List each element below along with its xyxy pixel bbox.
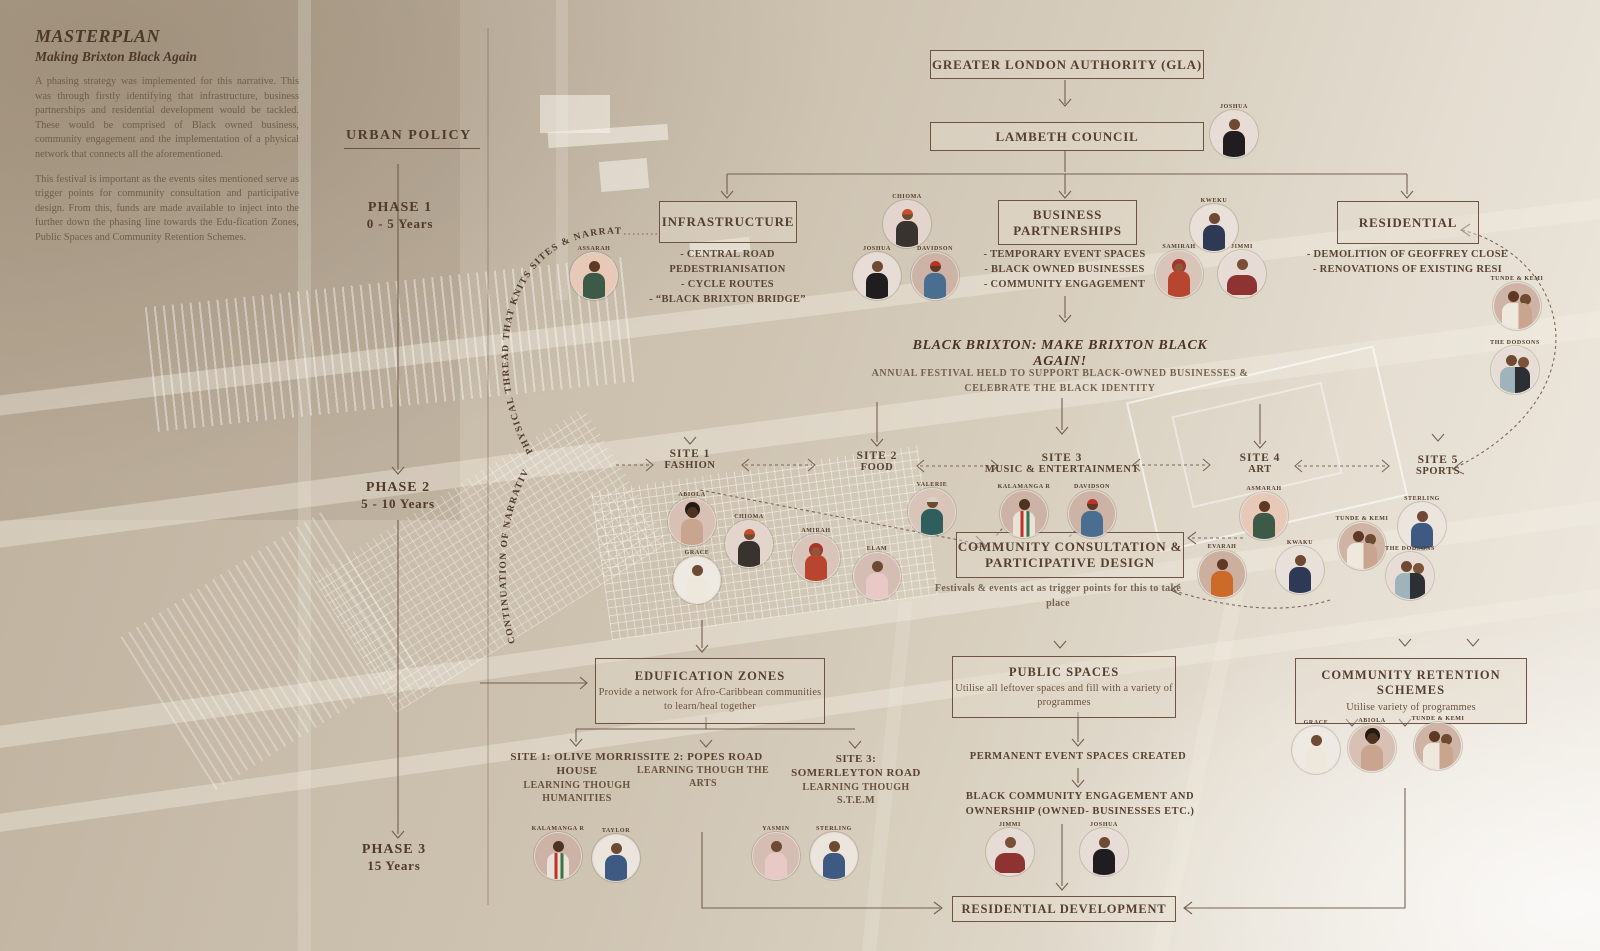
avatar-jimmi: JIMMI: [982, 822, 1038, 875]
learning-site-2-method: LEARNING THOUGH THE ARTS: [632, 764, 774, 790]
person-icon: [1387, 553, 1433, 599]
avatar-tunde-kemi: TUNDE & KEMI: [1410, 716, 1466, 769]
avatar-name: JOSHUA: [849, 246, 905, 252]
avatar-joshua: JOSHUA: [1206, 104, 1262, 157]
avatar-valerie: VALERIE: [904, 482, 960, 535]
avatar-yasmin: YASMIN: [748, 826, 804, 879]
intro-paragraph-2: This festival is important as the events…: [35, 173, 299, 246]
site-5-id: SITE 5: [1343, 454, 1533, 466]
avatar-grace: GRACE: [669, 550, 725, 603]
avatar-circle: [1156, 251, 1202, 297]
avatar-name: KALAMANGA R: [996, 484, 1052, 490]
avatar-circle: [1492, 347, 1538, 393]
site-4-name: ART: [1165, 464, 1355, 475]
person-icon: [987, 829, 1033, 875]
person-icon: [535, 833, 581, 879]
avatar-kalamanga: KALAMANGA R: [996, 484, 1052, 537]
lambeth-council-box: LAMBETH COUNCIL: [930, 122, 1204, 151]
avatar-name: JIMMI: [1214, 244, 1270, 250]
lambeth-council-label: LAMBETH COUNCIL: [995, 129, 1138, 145]
avatar-circle: [1081, 829, 1127, 875]
avatar-name: ASMARAH: [1236, 486, 1292, 492]
infrastructure-items: - CENTRAL ROAD PEDESTRIANISATION - CYCLE…: [640, 248, 815, 308]
avatar-circle: [854, 253, 900, 299]
person-icon: [1241, 493, 1287, 539]
site-5-name: SPORTS: [1343, 466, 1533, 477]
avatar-circle: [912, 253, 958, 299]
person-icon: [1001, 491, 1047, 537]
avatar-name: ABIOLA: [1344, 718, 1400, 724]
person-icon: [909, 489, 955, 535]
person-icon: [1399, 503, 1445, 549]
festival-subtext: ANNUAL FESTIVAL HELD TO SUPPORT BLACK-OW…: [868, 366, 1252, 396]
person-icon: [854, 553, 900, 599]
business-item: - COMMUNITY ENGAGEMENT: [962, 278, 1167, 293]
site-4-id: SITE 4: [1165, 452, 1355, 464]
avatar-abiola: ABIOLA: [664, 492, 720, 545]
site-2-id: SITE 2: [782, 450, 972, 462]
avatar-circle: [571, 253, 617, 299]
person-icon: [1415, 723, 1461, 769]
avatar-name: YASMIN: [748, 826, 804, 832]
phase-3-years: 15 Years: [324, 858, 464, 874]
site-1-label: SITE 1 FASHION: [595, 448, 785, 471]
retention-desc: Utilise variety of programmes: [1346, 701, 1476, 714]
person-icon: [593, 835, 639, 881]
avatar-name: TUNDE & KEMI: [1334, 516, 1390, 522]
phase-2-name: PHASE 2: [328, 480, 468, 496]
avatar-circle: [1293, 727, 1339, 773]
residential-box: RESIDENTIAL: [1337, 201, 1479, 244]
avatar-name: STERLING: [806, 826, 862, 832]
avatar-sterling: STERLING: [1394, 496, 1450, 549]
learning-site-3-method: LEARNING THOUGH S.T.E.M: [790, 781, 922, 807]
avatar-circle: [909, 489, 955, 535]
avatar-joshua: JOSHUA: [1076, 822, 1132, 875]
avatar-amirah: AMIRAH: [788, 528, 844, 581]
site-5-label: SITE 5 SPORTS: [1343, 454, 1533, 477]
public-spaces-box: PUBLIC SPACES Utilise all leftover space…: [952, 656, 1176, 718]
avatar-circle: [674, 557, 720, 603]
avatar-abiola: ABIOLA: [1344, 718, 1400, 771]
learning-site-1-method: LEARNING THOUGH HUMANITIES: [506, 779, 648, 805]
person-icon: [571, 253, 617, 299]
avatar-circle: [1339, 523, 1385, 569]
learning-site-3: SITE 3: SOMERLEYTON ROAD LEARNING THOUGH…: [790, 752, 922, 807]
avatar-name: DAVIDSON: [907, 246, 963, 252]
avatar-circle: [1219, 251, 1265, 297]
masterplan-poster: PHYSICAL THREAD THAT KNITS SITES & NARRA…: [0, 0, 1600, 951]
infrastructure-item: - “BLACK BRIXTON BRIDGE”: [640, 293, 815, 308]
avatar-name: KALAMANGA R: [530, 826, 586, 832]
business-partnerships-title: BUSINESS PARTNERSHIPS: [999, 207, 1136, 238]
public-spaces-title: PUBLIC SPACES: [1009, 665, 1119, 681]
phase-3-name: PHASE 3: [324, 842, 464, 858]
site-3-name: MUSIC & ENTERTAINMENT: [967, 464, 1157, 475]
infrastructure-title: INFRASTRUCTURE: [662, 214, 795, 230]
intro-paragraph-1: A phasing strategy was implemented for t…: [35, 75, 299, 163]
site-2-label: SITE 2 FOOD: [782, 450, 972, 473]
avatar-circle: [726, 521, 772, 567]
avatar-name: GRACE: [669, 550, 725, 556]
avatar-circle: [1241, 493, 1287, 539]
avatar-circle: [669, 499, 715, 545]
avatar-circle: [1001, 491, 1047, 537]
avatar-circle: [793, 535, 839, 581]
avatar-circle: [535, 833, 581, 879]
avatar-name: DAVIDSON: [1064, 484, 1120, 490]
site-3-label: SITE 3 MUSIC & ENTERTAINMENT: [967, 452, 1157, 475]
avatar-name: KWEKU: [1186, 198, 1242, 204]
avatar-taylor: TAYLOR: [588, 828, 644, 881]
avatar-kalamanga: KALAMANGA R: [530, 826, 586, 879]
person-icon: [1293, 727, 1339, 773]
phase-3: PHASE 3 15 Years: [324, 842, 464, 874]
gla-box: GREATER LONDON AUTHORITY (GLA): [930, 50, 1204, 79]
business-partnerships-box: BUSINESS PARTNERSHIPS: [998, 200, 1137, 245]
person-icon: [1211, 111, 1257, 157]
residential-development-label: RESIDENTIAL DEVELOPMENT: [962, 902, 1167, 917]
business-item: - TEMPORARY EVENT SPACES: [962, 248, 1167, 263]
avatar-name: EVARAH: [1194, 544, 1250, 550]
avatar-circle: [811, 833, 857, 879]
urban-policy-label: URBAN POLICY: [344, 128, 480, 149]
infrastructure-item: - CENTRAL ROAD PEDESTRIANISATION: [640, 248, 815, 278]
avatar-name: TUNDE & KEMI: [1489, 276, 1545, 282]
avatar-circle: [1349, 725, 1395, 771]
avatar-circle: [1415, 723, 1461, 769]
avatar-name: JOSHUA: [1076, 822, 1132, 828]
avatar-name: STERLING: [1394, 496, 1450, 502]
edufication-title: EDUFICATION ZONES: [635, 669, 785, 685]
site-3-id: SITE 3: [967, 452, 1157, 464]
person-icon: [1339, 523, 1385, 569]
residential-development-box: RESIDENTIAL DEVELOPMENT: [952, 896, 1176, 922]
avatar-evarah: EVARAH: [1194, 544, 1250, 597]
avatar-circle: [593, 835, 639, 881]
page-subtitle: Making Brixton Black Again: [35, 49, 299, 65]
phase-2-years: 5 - 10 Years: [328, 496, 468, 512]
learning-site-3-name: SITE 3: SOMERLEYTON ROAD: [790, 752, 922, 781]
retention-title: COMMUNITY RETENTION SCHEMES: [1298, 668, 1524, 699]
avatar-name: AMIRAH: [788, 528, 844, 534]
avatar-assarah: ASSARAH: [566, 246, 622, 299]
edufication-zones-box: EDUFICATION ZONES Provide a network for …: [595, 658, 825, 724]
avatar-name: CHIOMA: [721, 514, 777, 520]
avatar-circle: [1277, 547, 1323, 593]
phase-2: PHASE 2 5 - 10 Years: [328, 480, 468, 512]
business-item: - BLACK OWNED BUSINESSES: [962, 263, 1167, 278]
avatar-name: VALERIE: [904, 482, 960, 488]
avatar-name: ABIOLA: [664, 492, 720, 498]
avatar-name: JIMMI: [982, 822, 1038, 828]
avatar-chioma: CHIOMA: [879, 194, 935, 247]
avatar-samirah: SAMIRAH: [1151, 244, 1207, 297]
infrastructure-item: - CYCLE ROUTES: [640, 278, 815, 293]
avatar-kwaku: KWAKU: [1272, 540, 1328, 593]
site-2-name: FOOD: [782, 462, 972, 473]
person-icon: [912, 253, 958, 299]
site-1-name: FASHION: [595, 460, 785, 471]
avatar-circle: [1399, 503, 1445, 549]
avatar-jimmi: JIMMI: [1214, 244, 1270, 297]
avatar-sterling: STERLING: [806, 826, 862, 879]
avatar-circle: [753, 833, 799, 879]
site-1-id: SITE 1: [595, 448, 785, 460]
person-icon: [1494, 283, 1540, 329]
residential-title: RESIDENTIAL: [1359, 215, 1457, 231]
avatar-chioma: CHIOMA: [721, 514, 777, 567]
avatar-name: TUNDE & KEMI: [1410, 716, 1466, 722]
avatar-name: JOSHUA: [1206, 104, 1262, 110]
avatar-name: GRACE: [1288, 720, 1344, 726]
avatar-name: CHIOMA: [879, 194, 935, 200]
avatar-circle: [1069, 491, 1115, 537]
avatar-davidson: DAVIDSON: [907, 246, 963, 299]
avatar-name: KWAKU: [1272, 540, 1328, 546]
person-icon: [854, 253, 900, 299]
avatar-circle: [1211, 111, 1257, 157]
avatar-circle: [884, 201, 930, 247]
masthead: MASTERPLAN Making Brixton Black Again A …: [35, 26, 299, 246]
residential-items: - DEMOLITION OF GEOFFREY CLOSE - RENOVAT…: [1300, 248, 1515, 278]
person-icon: [1069, 491, 1115, 537]
learning-site-2: SITE 2: POPES ROAD LEARNING THOUGH THE A…: [632, 750, 774, 790]
person-icon: [674, 557, 720, 603]
learning-site-1: SITE 1: OLIVE MORRIS HOUSE LEARNING THOU…: [506, 750, 648, 805]
avatar-the-dodsons: THE DODSONS: [1487, 340, 1543, 393]
person-icon: [1081, 829, 1127, 875]
avatar-the-dodsons: THE DODSONS: [1382, 546, 1438, 599]
consultation-box: COMMUNITY CONSULTATION & PARTICIPATIVE D…: [956, 532, 1184, 578]
avatar-circle: [1199, 551, 1245, 597]
business-partnerships-items: - TEMPORARY EVENT SPACES - BLACK OWNED B…: [962, 248, 1167, 293]
avatar-grace: GRACE: [1288, 720, 1344, 773]
person-icon: [753, 833, 799, 879]
avatar-circle: [854, 553, 900, 599]
person-icon: [1492, 347, 1538, 393]
avatar-name: SAMIRAH: [1151, 244, 1207, 250]
avatar-circle: [987, 829, 1033, 875]
avatar-name: ASSARAH: [566, 246, 622, 252]
person-icon: [1277, 547, 1323, 593]
community-retention-box: COMMUNITY RETENTION SCHEMES Utilise vari…: [1295, 658, 1527, 724]
residential-item: - DEMOLITION OF GEOFFREY CLOSE: [1300, 248, 1515, 263]
residential-item: - RENOVATIONS OF EXISTING RESI: [1300, 263, 1515, 278]
avatar-asmarah: ASMARAH: [1236, 486, 1292, 539]
infrastructure-box: INFRASTRUCTURE: [659, 201, 797, 243]
person-icon: [1199, 551, 1245, 597]
avatar-elam: ELAM: [849, 546, 905, 599]
ownership-label: BLACK COMMUNITY ENGAGEMENT AND OWNERSHIP…: [952, 790, 1208, 819]
avatar-joshua: JOSHUA: [849, 246, 905, 299]
person-icon: [793, 535, 839, 581]
permanent-spaces-label: PERMANENT EVENT SPACES CREATED: [958, 750, 1198, 765]
consultation-note: Festivals & events act as trigger points…: [928, 582, 1188, 611]
learning-site-1-name: SITE 1: OLIVE MORRIS HOUSE: [506, 750, 648, 779]
gla-label: GREATER LONDON AUTHORITY (GLA): [932, 57, 1202, 73]
avatar-davidson: DAVIDSON: [1064, 484, 1120, 537]
avatar-name: THE DODSONS: [1487, 340, 1543, 346]
avatar-name: TAYLOR: [588, 828, 644, 834]
avatar-circle: [1387, 553, 1433, 599]
person-icon: [1156, 251, 1202, 297]
public-spaces-desc: Utilise all leftover spaces and fill wit…: [955, 682, 1173, 709]
person-icon: [811, 833, 857, 879]
edufication-desc: Provide a network for Afro-Caribbean com…: [598, 686, 822, 713]
avatar-name: THE DODSONS: [1382, 546, 1438, 552]
consultation-title: COMMUNITY CONSULTATION & PARTICIPATIVE D…: [957, 539, 1183, 572]
person-icon: [1219, 251, 1265, 297]
person-icon: [1349, 725, 1395, 771]
person-icon: [726, 521, 772, 567]
person-icon: [669, 499, 715, 545]
learning-site-2-name: SITE 2: POPES ROAD: [632, 750, 774, 764]
phase-1-name: PHASE 1: [330, 200, 470, 216]
page-title: MASTERPLAN: [35, 26, 299, 47]
person-icon: [884, 201, 930, 247]
site-4-label: SITE 4 ART: [1165, 452, 1355, 475]
phase-1: PHASE 1 0 - 5 Years: [330, 200, 470, 232]
avatar-tunde-kemi: TUNDE & KEMI: [1489, 276, 1545, 329]
avatar-circle: [1494, 283, 1540, 329]
phase-1-years: 0 - 5 Years: [330, 216, 470, 232]
avatar-name: ELAM: [849, 546, 905, 552]
